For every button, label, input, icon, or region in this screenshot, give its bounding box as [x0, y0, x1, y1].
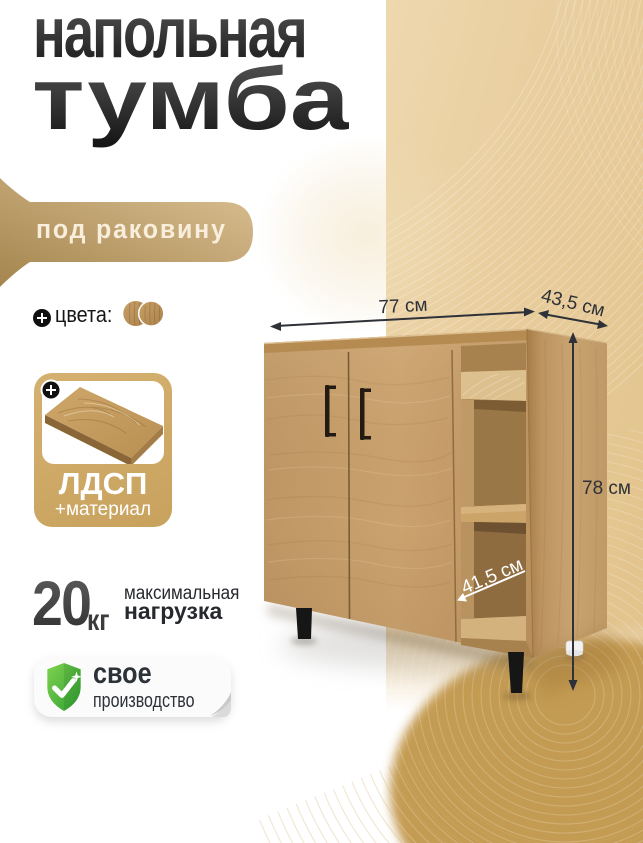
svg-text:77 см: 77 см	[378, 295, 428, 319]
svg-text:78 см: 78 см	[582, 478, 631, 499]
